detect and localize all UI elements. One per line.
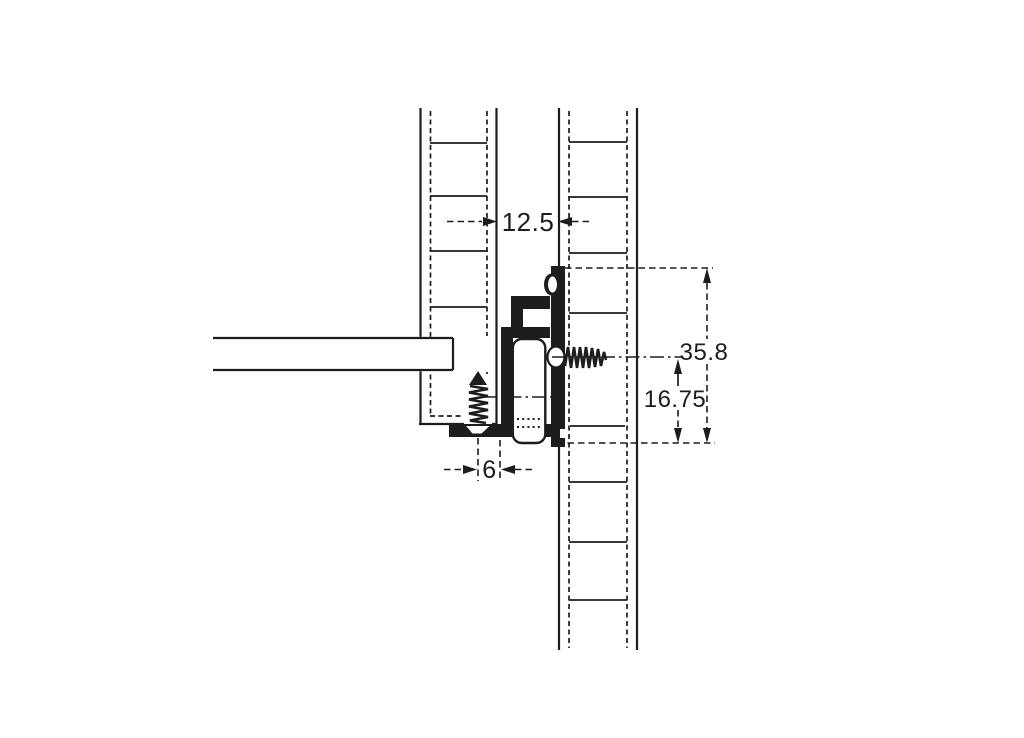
dim-overall-height: 35.8 <box>680 268 729 443</box>
dim-panel-gap: 12.5 <box>447 207 592 237</box>
technical-drawing-canvas: 12.5 35.8 16.75 6 <box>0 0 1024 738</box>
roller <box>513 339 546 443</box>
drawer-slide-cross-section-diagram: 12.5 35.8 16.75 6 <box>0 0 1024 738</box>
dim-label-screw-offset: 6 <box>482 456 496 484</box>
dim-label-panel-gap: 12.5 <box>502 207 555 237</box>
dim-center-to-bottom: 16.75 <box>644 359 707 443</box>
dim-label-overall-height: 35.8 <box>680 339 729 366</box>
cabinet-side-panel <box>559 108 637 650</box>
drawer-bottom-panel <box>213 337 453 372</box>
dim-label-center-to-bottom: 16.75 <box>644 386 707 413</box>
dim-screw-offset: 6 <box>444 438 534 484</box>
